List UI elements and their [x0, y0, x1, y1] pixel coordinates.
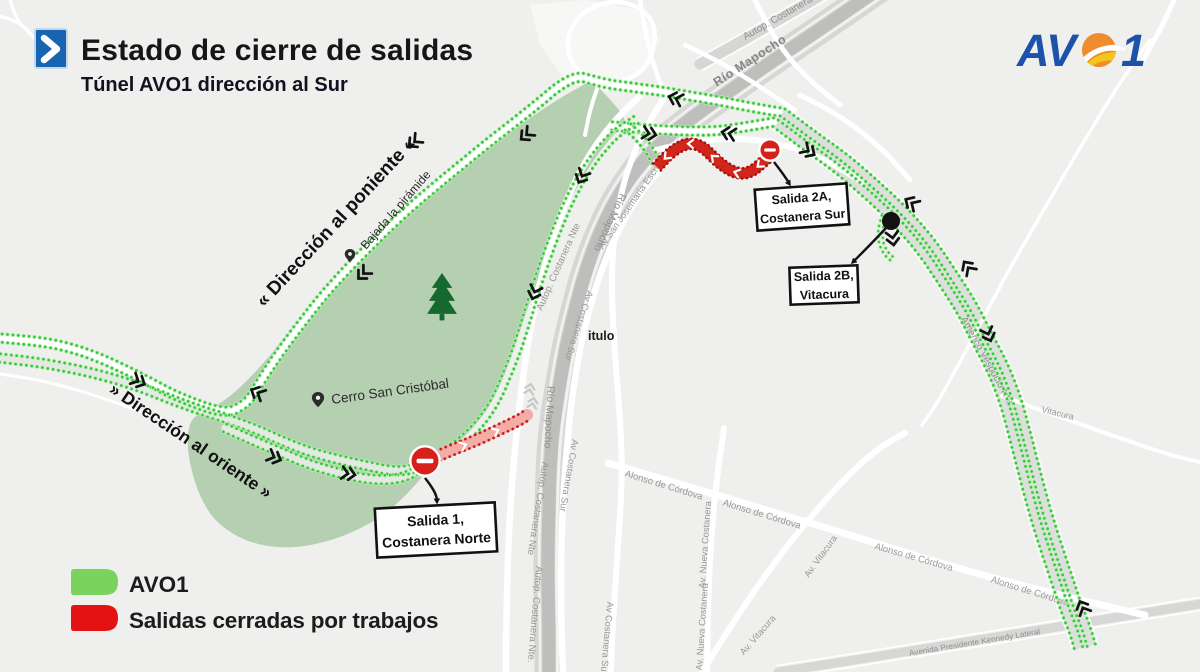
svg-text:Túnel AVO1 dirección al Sur: Túnel AVO1 dirección al Sur [81, 74, 348, 96]
svg-text:AV: AV [1016, 25, 1080, 76]
svg-text:1: 1 [1121, 25, 1146, 76]
svg-text:Salidas cerradas por trabajos: Salidas cerradas por trabajos [129, 608, 438, 633]
svg-text:AVO1: AVO1 [129, 572, 189, 597]
svg-text:Estado de cierre de salidas: Estado de cierre de salidas [81, 34, 473, 67]
svg-text:Salida 1,: Salida 1, [407, 510, 465, 529]
svg-text:Salida 2B,: Salida 2B, [794, 268, 854, 284]
svg-text:itulo: itulo [588, 329, 615, 343]
svg-text:Vitacura: Vitacura [800, 287, 851, 303]
